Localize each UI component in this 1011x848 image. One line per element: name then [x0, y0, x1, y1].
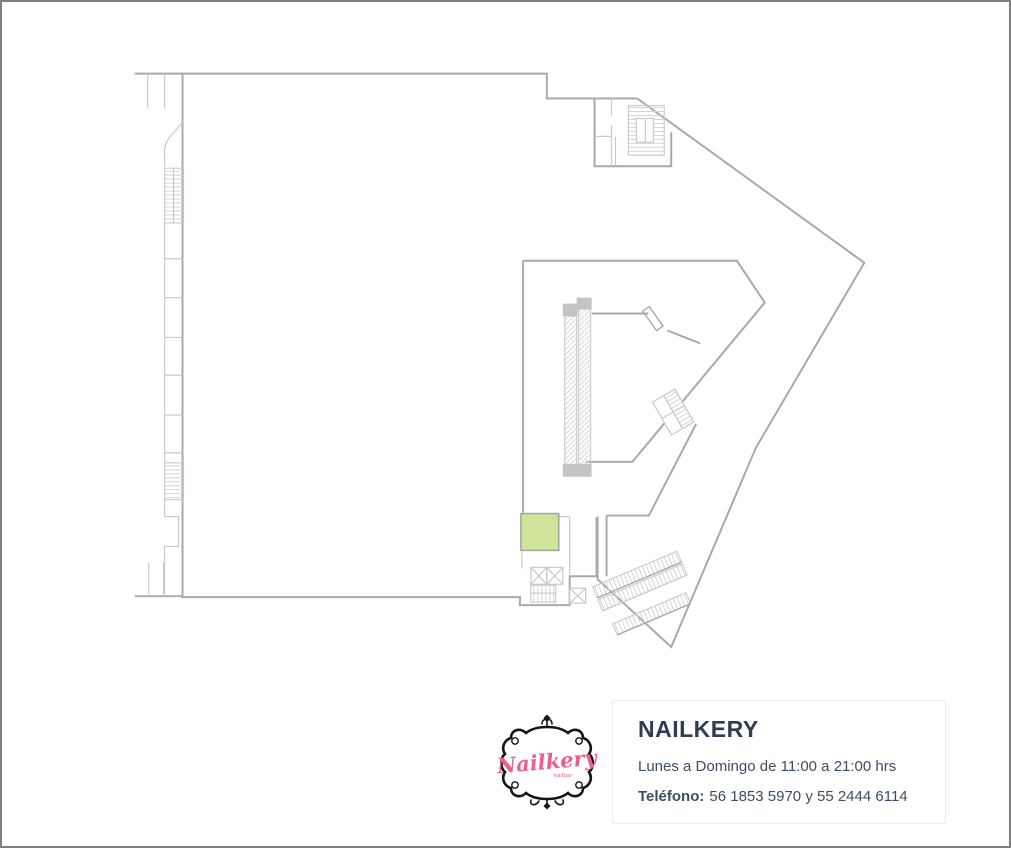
logo-tagline-text: nailbar — [553, 773, 573, 779]
stair-room — [595, 99, 672, 167]
stairs-icon — [165, 463, 184, 500]
elevator-cluster — [531, 567, 586, 603]
nailkery-logo-image: Nailkery nailbar — [495, 714, 599, 810]
gate-icon — [643, 307, 663, 331]
logo-brand-text: Nailkery — [495, 745, 599, 779]
store-highlight — [521, 514, 559, 551]
store-name: NAILKERY — [638, 716, 945, 743]
left-wing-details — [148, 74, 184, 597]
phone-label: Teléfono: — [638, 788, 704, 805]
phone-numbers: 56 1853 5970 y 55 2444 6114 — [709, 788, 907, 805]
outer-walls — [135, 74, 865, 647]
directory-page: Nailkery nailbar NAILKERY Lunes a Doming… — [0, 0, 1011, 848]
escalator-icon — [579, 306, 591, 469]
escalator-bank — [563, 298, 592, 477]
store-info-card: NAILKERY Lunes a Domingo de 11:00 a 21:0… — [612, 700, 946, 824]
store-phone: Teléfono:56 1853 5970 y 55 2444 6114 — [638, 788, 945, 805]
escalator-icon — [565, 312, 577, 469]
store-hours: Lunes a Domingo de 11:00 a 21:00 hrs — [638, 758, 945, 775]
nailkery-logo: Nailkery nailbar — [495, 714, 599, 810]
